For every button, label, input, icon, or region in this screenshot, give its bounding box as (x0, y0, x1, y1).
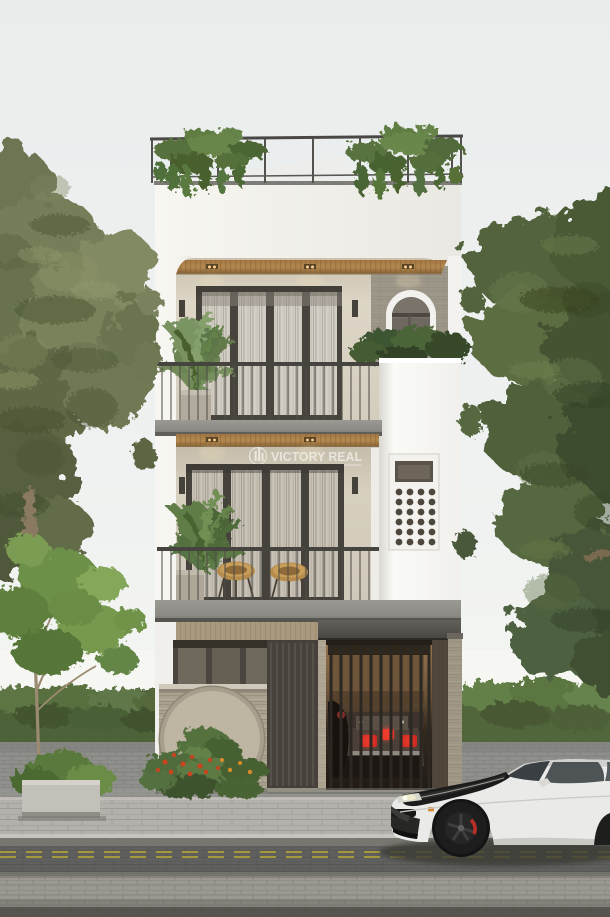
svg-text:VICTORY REAL: VICTORY REAL (271, 449, 362, 464)
